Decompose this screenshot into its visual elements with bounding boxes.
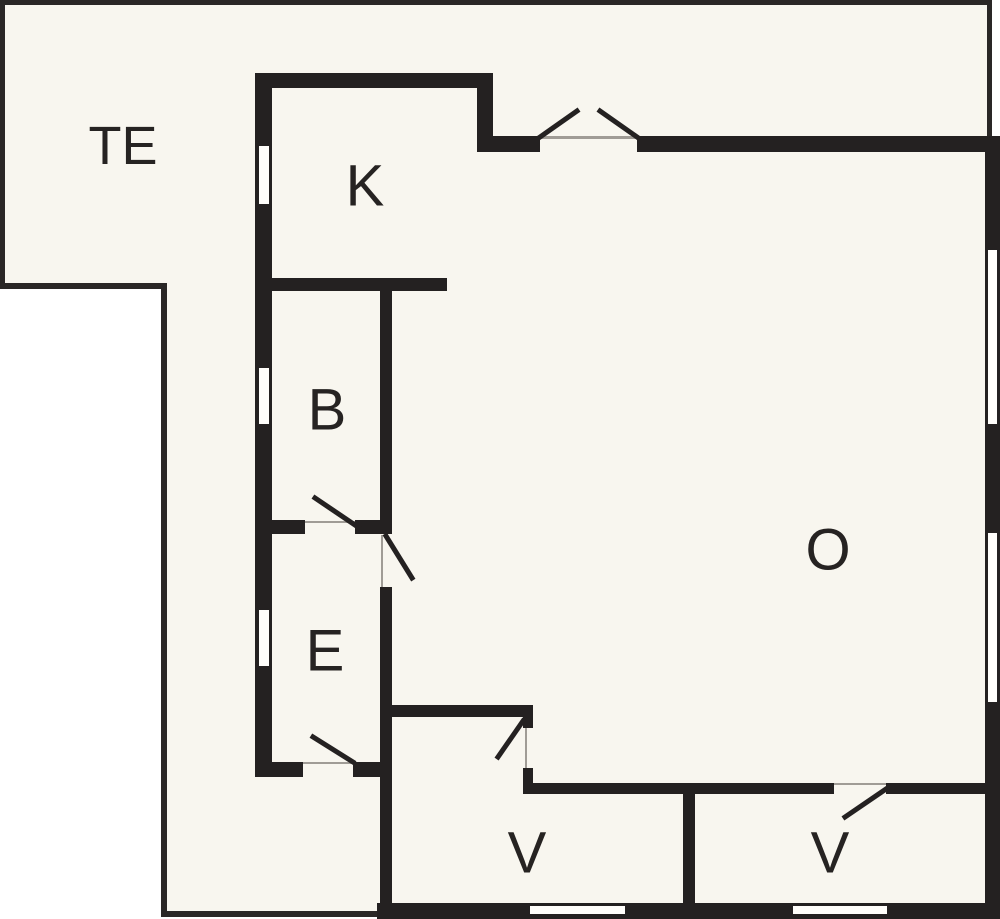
kitchen-north-wall <box>255 73 493 88</box>
terrace-outline-top <box>0 0 992 5</box>
room-label-e: E <box>306 619 345 684</box>
room-label-v1: V <box>508 821 547 886</box>
bedroom1-north-wall <box>380 705 532 717</box>
bedrooms-north-wall-west <box>523 783 834 794</box>
room-label-v2: V <box>811 821 850 886</box>
entry-south-wall-east <box>353 762 392 777</box>
room-label-o: O <box>805 518 850 583</box>
north-step-wall <box>477 136 540 152</box>
bedroom2-south-window-window-icon <box>793 906 887 914</box>
floor-plan-drawing: TEKBEOVV <box>0 0 1000 919</box>
terrace-outline-inner-vertical <box>161 283 167 917</box>
living-north-wall <box>637 136 985 152</box>
terrace-outline-left <box>0 0 5 289</box>
bath-west-window-window-icon <box>259 368 269 424</box>
room-label-b: B <box>308 378 347 443</box>
terrace-outline-right <box>987 0 992 140</box>
south-exterior-wall <box>377 903 1000 919</box>
bedrooms-north-wall-east <box>886 783 985 794</box>
entry-south-wall-west <box>255 762 303 777</box>
bedroom2-door-opening-line <box>834 783 886 785</box>
room-label-k: K <box>346 154 385 219</box>
bedroom1-door-opening-line <box>525 728 527 768</box>
entry-west-window-window-icon <box>259 610 269 666</box>
entry-living-door-opening-line <box>381 535 383 587</box>
terrace-outline-bottom <box>161 911 383 917</box>
bedroom-divider-wall <box>683 783 695 903</box>
bedroom1-south-window-window-icon <box>530 906 625 914</box>
entry-door-opening-line <box>303 762 353 764</box>
room-label-te: TE <box>88 116 157 176</box>
kitchen-west-window-window-icon <box>259 146 269 204</box>
patio-door-opening-line <box>540 136 637 139</box>
floor-plan-page: TEKBEOVV <box>0 0 1000 919</box>
terrace-outline-te-bottom <box>0 283 167 289</box>
living-east-window-1-window-icon <box>988 250 997 424</box>
living-east-window-2-window-icon <box>988 533 997 702</box>
kitchen-bath-wall <box>255 278 447 291</box>
entry-east-wall <box>380 587 392 903</box>
bath-south-wall-west <box>255 520 305 534</box>
bedroom1-door-stub-north <box>523 705 533 728</box>
bath-east-wall <box>380 278 392 534</box>
